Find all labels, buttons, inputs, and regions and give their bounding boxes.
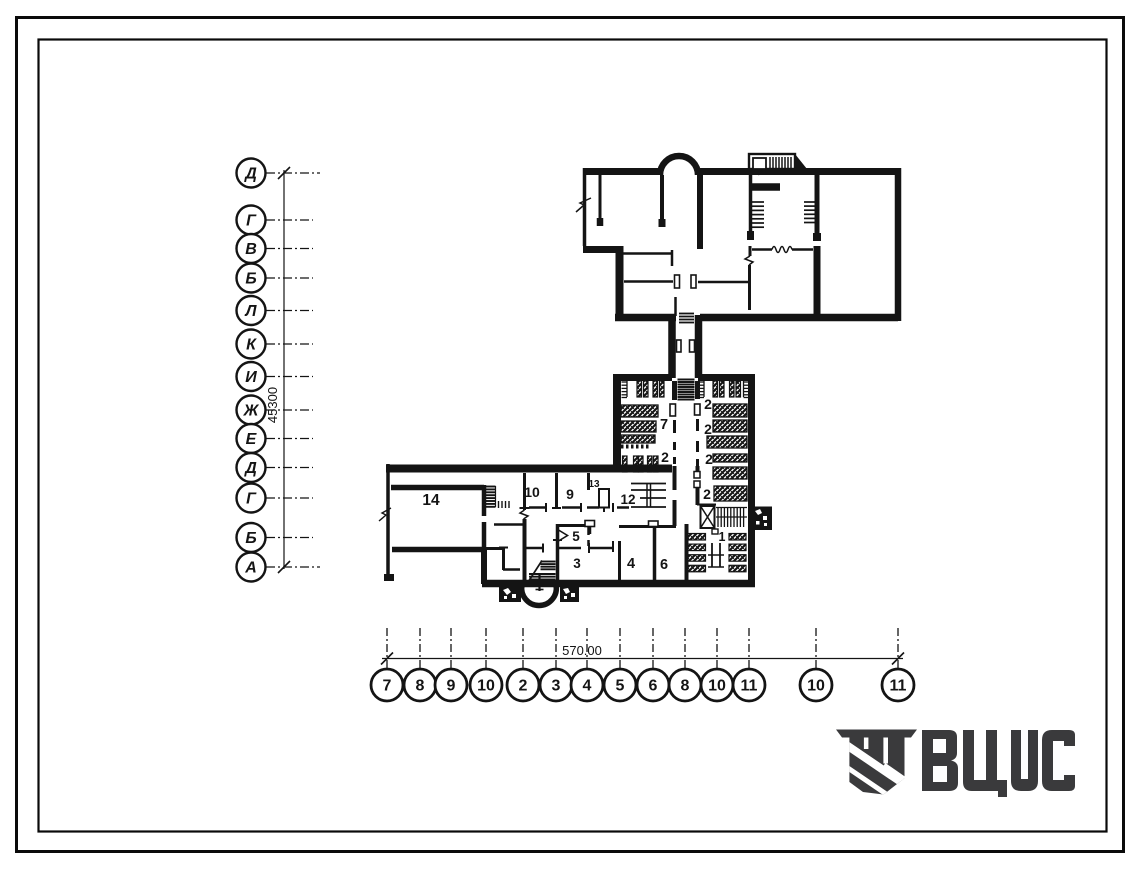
svg-text:1: 1 xyxy=(719,530,726,544)
svg-text:7: 7 xyxy=(660,417,668,433)
svg-text:9: 9 xyxy=(566,486,574,502)
svg-text:5: 5 xyxy=(572,529,580,544)
svg-text:Ж: Ж xyxy=(243,403,260,420)
svg-text:14: 14 xyxy=(422,492,440,509)
svg-text:3: 3 xyxy=(552,678,561,695)
svg-text:4: 4 xyxy=(627,556,635,572)
svg-text:3: 3 xyxy=(573,556,581,571)
svg-text:9: 9 xyxy=(447,678,456,695)
svg-text:8: 8 xyxy=(681,678,690,695)
svg-text:11: 11 xyxy=(741,678,758,695)
svg-text:12: 12 xyxy=(620,492,635,507)
svg-text:Г: Г xyxy=(246,213,257,230)
svg-text:6: 6 xyxy=(649,678,658,695)
svg-text:Г: Г xyxy=(246,491,257,508)
svg-text:Е: Е xyxy=(246,431,258,448)
svg-text:7: 7 xyxy=(383,678,392,695)
svg-text:2: 2 xyxy=(704,396,712,412)
svg-text:10: 10 xyxy=(708,678,726,695)
svg-text:2: 2 xyxy=(661,449,669,465)
svg-text:11: 11 xyxy=(890,678,907,695)
svg-text:2: 2 xyxy=(519,678,528,695)
svg-text:570.00: 570.00 xyxy=(562,643,602,658)
svg-text:8: 8 xyxy=(416,678,425,695)
svg-text:4: 4 xyxy=(583,678,592,695)
svg-text:10: 10 xyxy=(807,678,825,695)
svg-text:Б: Б xyxy=(245,530,256,547)
svg-text:И: И xyxy=(245,369,257,386)
svg-text:2: 2 xyxy=(703,486,711,502)
svg-text:10: 10 xyxy=(524,484,540,500)
svg-text:Д: Д xyxy=(243,166,257,183)
svg-text:А: А xyxy=(244,560,257,577)
svg-text:В: В xyxy=(245,241,257,258)
svg-text:10: 10 xyxy=(477,678,495,695)
svg-text:2: 2 xyxy=(704,421,712,437)
svg-text:2: 2 xyxy=(705,451,713,467)
svg-text:45300: 45300 xyxy=(265,387,280,423)
svg-text:5: 5 xyxy=(616,678,625,695)
svg-text:Б: Б xyxy=(245,271,256,288)
svg-text:К: К xyxy=(246,337,257,354)
svg-text:6: 6 xyxy=(660,557,668,573)
svg-text:Л: Л xyxy=(245,303,258,320)
svg-text:Д: Д xyxy=(243,460,257,477)
